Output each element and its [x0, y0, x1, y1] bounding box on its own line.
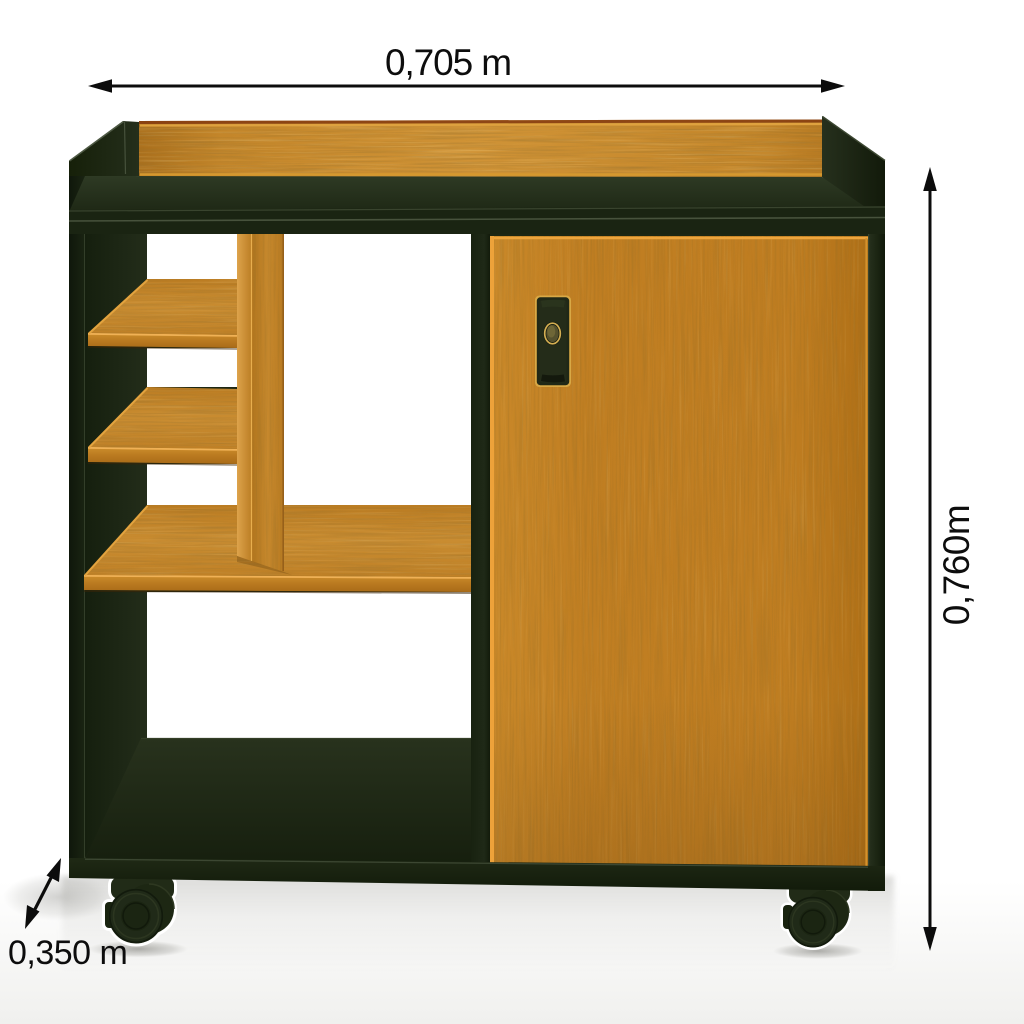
svg-text:0,350 m: 0,350 m — [8, 934, 127, 972]
svg-text:0,705 m: 0,705 m — [385, 42, 511, 83]
svg-text:0,760m: 0,760m — [936, 505, 977, 625]
